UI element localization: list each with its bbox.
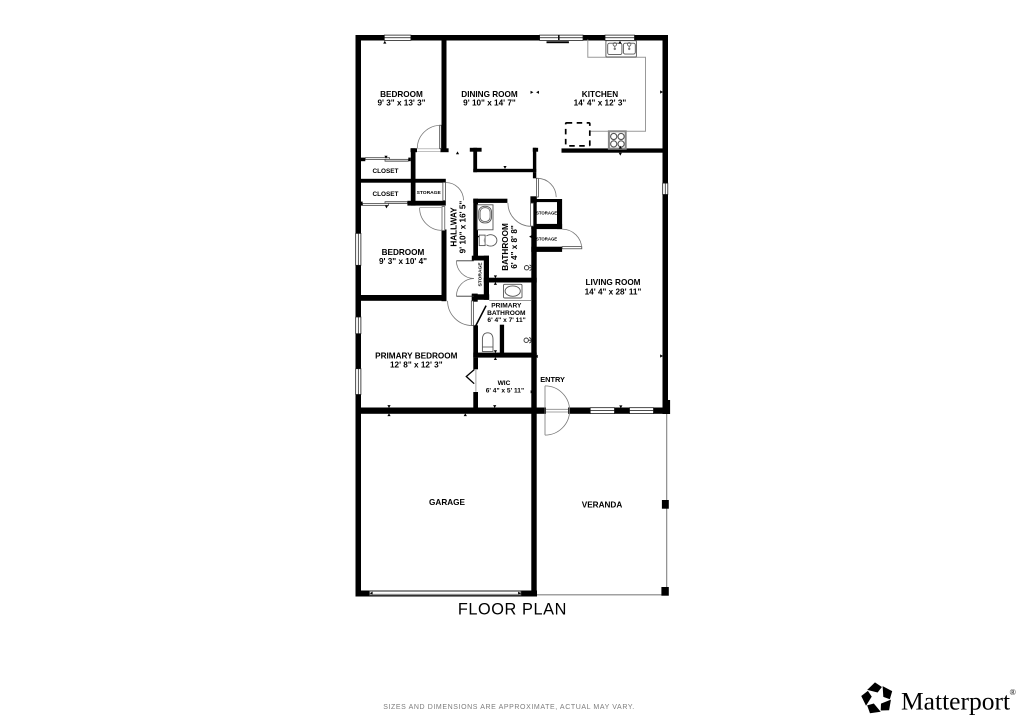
svg-text:BEDROOM: BEDROOM xyxy=(382,248,425,257)
svg-text:WIC: WIC xyxy=(498,380,511,387)
svg-text:KITCHEN: KITCHEN xyxy=(582,90,618,99)
svg-text:DINING ROOM: DINING ROOM xyxy=(461,90,518,99)
svg-text:12' 8" x 12' 3": 12' 8" x 12' 3" xyxy=(390,360,443,369)
svg-text:ENTRY: ENTRY xyxy=(540,375,565,384)
svg-text:6' 4" x 5' 11": 6' 4" x 5' 11" xyxy=(486,388,524,395)
svg-text:STORAGE: STORAGE xyxy=(536,236,557,241)
svg-text:STORAGE: STORAGE xyxy=(417,190,442,196)
svg-text:BATHROOM: BATHROOM xyxy=(501,223,510,271)
svg-text:®: ® xyxy=(1010,687,1017,697)
svg-text:9' 3" x 13' 3": 9' 3" x 13' 3" xyxy=(377,99,425,108)
svg-text:CLOSET: CLOSET xyxy=(373,191,399,198)
svg-text:9' 10" x 16' 5": 9' 10" x 16' 5" xyxy=(459,201,468,254)
svg-text:FLOOR PLAN: FLOOR PLAN xyxy=(458,601,567,619)
svg-text:BEDROOM: BEDROOM xyxy=(380,90,423,99)
svg-text:CLOSET: CLOSET xyxy=(373,168,399,175)
svg-text:6' 4" x 8' 8": 6' 4" x 8' 8" xyxy=(510,225,519,269)
svg-text:14' 4" x 28' 11": 14' 4" x 28' 11" xyxy=(585,287,642,296)
svg-text:14' 4" x 12' 3": 14' 4" x 12' 3" xyxy=(574,99,627,108)
svg-text:9' 3" x 10' 4": 9' 3" x 10' 4" xyxy=(379,257,427,266)
svg-text:6' 4" x 7' 11": 6' 4" x 7' 11" xyxy=(487,317,525,324)
svg-text:STORAGE: STORAGE xyxy=(478,262,484,287)
svg-text:SIZES AND DIMENSIONS ARE APPRO: SIZES AND DIMENSIONS ARE APPROXIMATE, AC… xyxy=(383,704,635,711)
svg-text:HALLWAY: HALLWAY xyxy=(450,207,459,247)
svg-text:LIVING ROOM: LIVING ROOM xyxy=(585,278,640,287)
svg-text:Matterport: Matterport xyxy=(901,687,1010,716)
svg-text:STORAGE: STORAGE xyxy=(536,211,557,216)
svg-text:9' 10" x 14' 7": 9' 10" x 14' 7" xyxy=(463,99,516,108)
svg-text:GARAGE: GARAGE xyxy=(429,498,465,507)
svg-text:VERANDA: VERANDA xyxy=(582,501,623,510)
svg-text:PRIMARY BEDROOM: PRIMARY BEDROOM xyxy=(375,351,458,360)
svg-text:BATHROOM: BATHROOM xyxy=(487,310,526,317)
svg-text:PRIMARY: PRIMARY xyxy=(491,303,522,310)
